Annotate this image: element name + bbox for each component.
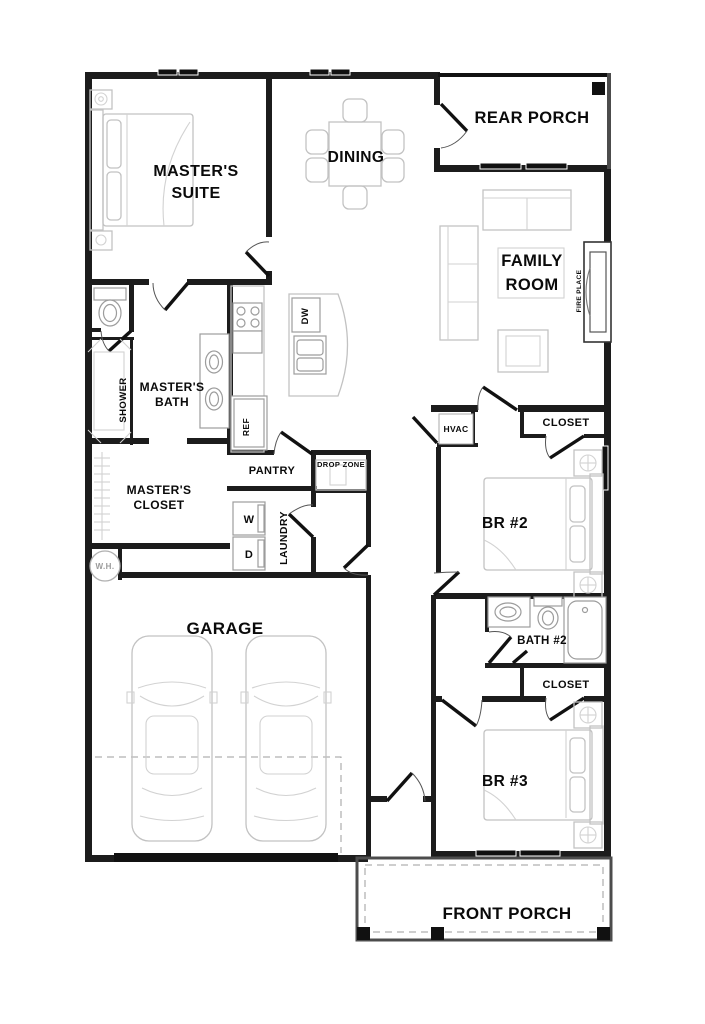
toilet-icon [538,607,558,629]
porch-post [431,927,444,940]
label-br2: BR #2 [482,515,528,532]
label-shower: SHOWER [118,377,129,422]
toilet-tank-icon [534,597,562,606]
fireplace [584,242,611,342]
label-masters-closet: CLOSET [133,498,184,512]
sink-icon [495,603,521,621]
label-hvac: HVAC [443,424,468,434]
label-dining: DINING [328,149,385,166]
label-family-room: FAMILY [501,252,562,270]
garage-contents [95,636,341,853]
sink-icon [206,351,223,373]
oven-icon [233,331,262,353]
toilet-tank-icon [94,288,126,300]
label-rear-porch: REAR PORCH [475,109,590,127]
label-family-room: ROOM [506,276,559,294]
floor-plan-svg: MASTER'S SUITE DINING REAR PORCH FAMILY … [0,0,705,1024]
garage-door [114,853,338,862]
porch-post [597,927,610,940]
car-icon [241,636,331,841]
label-dw: DW [300,308,311,325]
label-br3: BR #3 [482,773,528,790]
car-icon [127,636,217,841]
bath2-fixtures [488,597,606,663]
front-porch [357,858,611,940]
porch-post [357,927,370,940]
label-master-suite: MASTER'S [153,163,238,180]
label-masters-bath: MASTER'S [140,380,205,394]
label-masters-bath: BATH [155,395,189,409]
label-closet-br3: CLOSET [542,679,589,691]
porch-post [592,82,605,95]
closet-rod [94,452,110,540]
label-closet-br2: CLOSET [542,417,589,429]
label-garage: GARAGE [186,619,263,638]
label-front-porch: FRONT PORCH [442,904,571,923]
label-masters-closet: MASTER'S [127,483,192,497]
master-bath-fixtures [88,288,229,443]
label-fireplace: FIRE PLACE [576,269,583,312]
label-ref: REF [241,418,251,436]
label-water-heater: W.H. [96,562,115,571]
label-master-suite: SUITE [171,185,220,202]
label-drop-zone: DROP ZONE [317,460,365,469]
label-laundry: LAUNDRY [278,511,290,565]
label-pantry: PANTRY [249,465,296,477]
floor-plan-page: MASTER'S SUITE DINING REAR PORCH FAMILY … [0,0,705,1024]
label-dryer: D [245,549,253,561]
sink-icon [206,388,223,410]
label-bath2: BATH #2 [517,635,567,647]
label-washer: W [244,514,255,526]
